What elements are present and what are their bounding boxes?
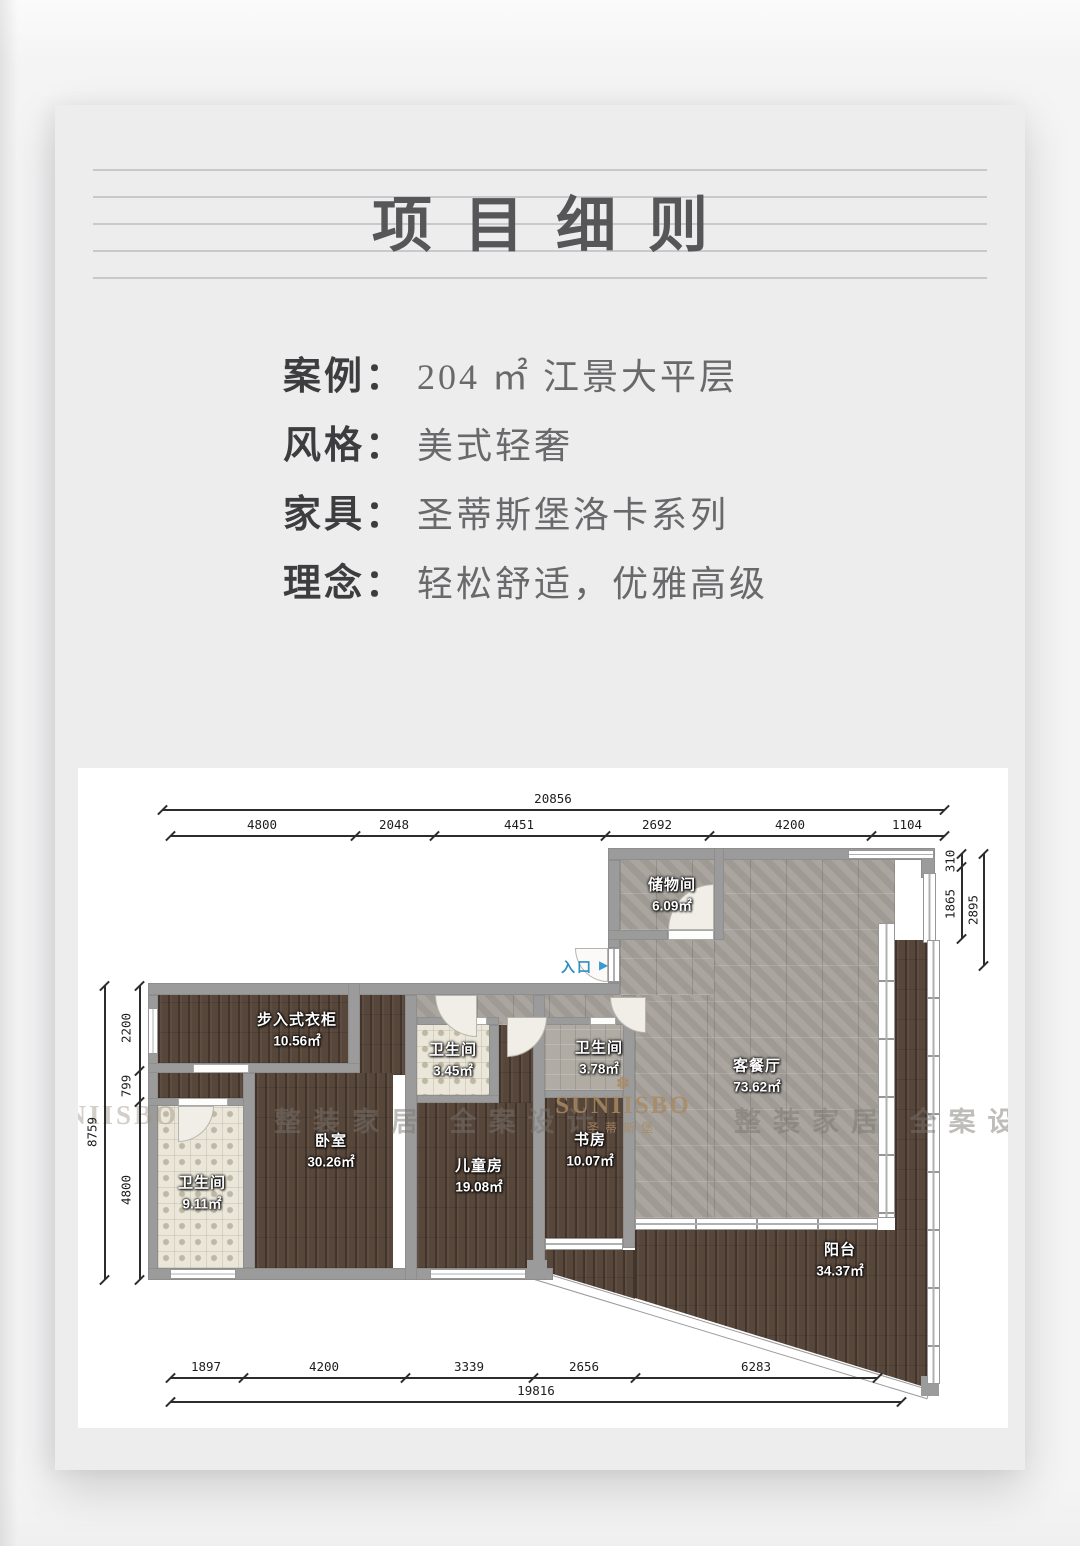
sliding-window bbox=[545, 1238, 623, 1250]
page-edge-shadow bbox=[0, 0, 18, 1546]
wall-corner bbox=[527, 1260, 547, 1278]
wall bbox=[148, 983, 620, 995]
door-sill bbox=[668, 930, 714, 940]
dim-label: 6283 bbox=[741, 1359, 771, 1374]
dim-label: 1897 bbox=[191, 1359, 221, 1374]
title-block: 项目细则 bbox=[55, 105, 1025, 345]
dim-line bbox=[162, 809, 944, 811]
floor-plan: SUNIISBO 整装家居 全案设计 ✽ SUNIISBO 圣蒂斯堡 整装家居 … bbox=[78, 768, 1008, 1428]
dim-line bbox=[104, 986, 106, 1280]
room-label-living: 客餐厅 73.62㎡ bbox=[733, 1055, 781, 1096]
wall bbox=[714, 848, 724, 940]
info-row-concept: 理念 ： 轻松舒适，优雅高级 bbox=[283, 562, 768, 606]
dim-label: 19816 bbox=[517, 1383, 555, 1398]
info-value: 美式轻奢 bbox=[417, 424, 573, 468]
room-label-closet: 步入式衣柜 10.56㎡ bbox=[257, 1009, 337, 1050]
room-label-bath-3: 卫生间 3.78㎡ bbox=[575, 1037, 623, 1078]
room-label-bath-master: 卫生间 9.11㎡ bbox=[178, 1172, 226, 1213]
room-label-bath-2: 卫生间 3.45㎡ bbox=[429, 1039, 477, 1080]
sliding-window bbox=[878, 923, 895, 1218]
room-label-balcony: 阳台 34.37㎡ bbox=[816, 1239, 863, 1280]
room-living-dining bbox=[714, 860, 895, 1218]
page-title: 项目细则 bbox=[55, 183, 1025, 269]
project-info-list: 案例 ： 204 ㎡ 江景大平层 风格 ： 美式轻奢 家具 ： 圣蒂斯堡洛卡系列… bbox=[283, 355, 768, 606]
dim-line bbox=[983, 854, 985, 966]
window bbox=[170, 1269, 236, 1279]
dim-label: 1104 bbox=[892, 817, 922, 832]
info-row-furniture: 家具 ： 圣蒂斯堡洛卡系列 bbox=[283, 493, 768, 537]
info-label: 风格 bbox=[283, 424, 365, 468]
wall bbox=[405, 995, 417, 1280]
dim-line bbox=[170, 1377, 877, 1379]
info-colon: ： bbox=[365, 424, 403, 468]
entrance-label: 入口 bbox=[561, 957, 593, 977]
dim-label: 8759 bbox=[85, 1117, 100, 1147]
project-card: 项目细则 案例 ： 204 ㎡ 江景大平层 风格 ： 美式轻奢 家具 ： 圣蒂斯… bbox=[55, 105, 1025, 1470]
door-sill bbox=[193, 1064, 249, 1073]
info-colon: ： bbox=[365, 355, 403, 399]
dim-label: 2895 bbox=[966, 895, 981, 925]
title-line bbox=[93, 277, 987, 279]
title-line bbox=[93, 169, 987, 171]
info-label: 案例 bbox=[283, 355, 365, 399]
room-living-dining bbox=[635, 995, 714, 1218]
dim-label: 2656 bbox=[569, 1359, 599, 1374]
wall bbox=[417, 1095, 499, 1103]
dim-label: 3339 bbox=[454, 1359, 484, 1374]
wall bbox=[148, 1063, 360, 1073]
wall bbox=[545, 1090, 623, 1098]
dim-label: 4451 bbox=[504, 817, 534, 832]
room-label-storage: 储物间 6.09㎡ bbox=[648, 874, 696, 915]
wall bbox=[348, 983, 360, 1073]
dim-label: 2692 bbox=[642, 817, 672, 832]
dim-label: 310 bbox=[943, 850, 958, 873]
dim-line bbox=[139, 986, 141, 1280]
info-row-case: 案例 ： 204 ㎡ 江景大平层 bbox=[283, 355, 768, 399]
window bbox=[848, 850, 934, 859]
wall bbox=[608, 930, 668, 940]
window bbox=[923, 873, 936, 943]
dim-label: 799 bbox=[119, 1075, 134, 1098]
room-living-dining bbox=[620, 940, 714, 995]
room-bedroom bbox=[360, 995, 405, 1075]
dim-label: 1865 bbox=[943, 889, 958, 919]
info-label: 家具 bbox=[283, 493, 365, 537]
info-value: 204 ㎡ 江景大平层 bbox=[417, 355, 738, 399]
dim-line bbox=[170, 835, 944, 837]
door-sill bbox=[590, 1017, 616, 1025]
entrance-door-sill bbox=[608, 948, 620, 982]
wall bbox=[623, 995, 635, 1248]
room-label-study: 书房 10.07㎡ bbox=[566, 1129, 613, 1170]
wall bbox=[243, 1073, 255, 1268]
dim-label: 2200 bbox=[119, 1013, 134, 1043]
room-bedroom bbox=[158, 1073, 243, 1098]
info-colon: ： bbox=[365, 562, 403, 606]
dim-label: 4800 bbox=[247, 817, 277, 832]
dim-label: 4200 bbox=[309, 1359, 339, 1374]
room-label-bedroom: 卧室 30.26㎡ bbox=[307, 1130, 354, 1171]
info-label: 理念 bbox=[283, 562, 365, 606]
dim-label: 4200 bbox=[775, 817, 805, 832]
info-row-style: 风格 ： 美式轻奢 bbox=[283, 424, 768, 468]
window bbox=[927, 940, 940, 1384]
info-value: 圣蒂斯堡洛卡系列 bbox=[417, 493, 729, 537]
info-value: 轻松舒适，优雅高级 bbox=[417, 562, 768, 606]
window bbox=[148, 1008, 158, 1054]
info-colon: ： bbox=[365, 493, 403, 537]
dim-label: 2048 bbox=[379, 817, 409, 832]
room-balcony bbox=[895, 940, 927, 1230]
sliding-window bbox=[635, 1218, 878, 1230]
window bbox=[430, 1269, 526, 1279]
door-sill bbox=[178, 1098, 228, 1106]
dim-line bbox=[170, 1401, 901, 1403]
dim-label: 20856 bbox=[534, 791, 572, 806]
room-label-kids: 儿童房 19.08㎡ bbox=[455, 1155, 503, 1196]
wall bbox=[489, 1025, 499, 1103]
dim-label: 4800 bbox=[119, 1175, 134, 1205]
entrance-arrow-icon: ▶ bbox=[599, 958, 608, 972]
